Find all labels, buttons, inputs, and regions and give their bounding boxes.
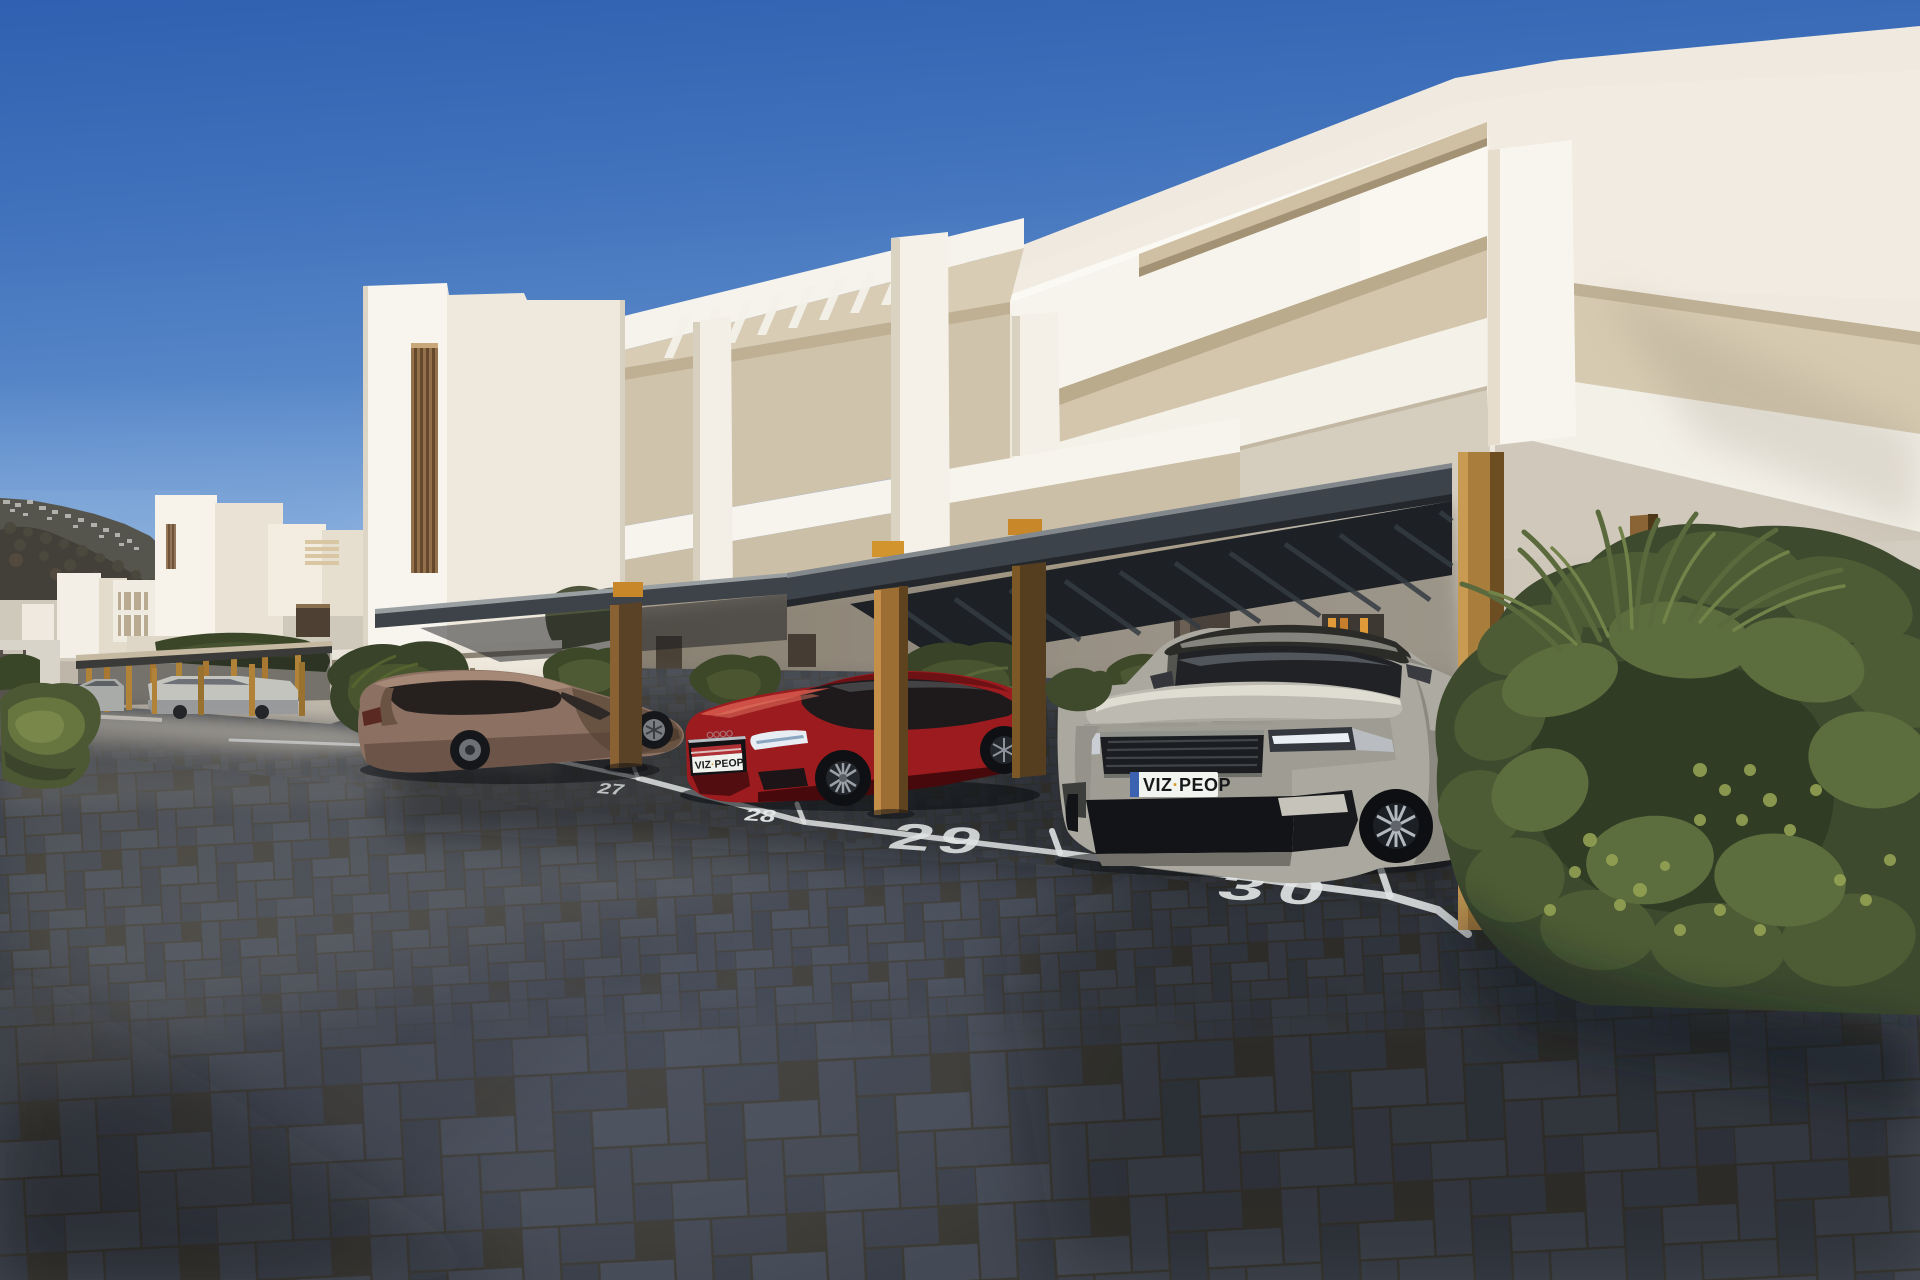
svg-text:VIZ·PEOP: VIZ·PEOP	[1143, 775, 1231, 795]
svg-text:29: 29	[883, 815, 997, 863]
